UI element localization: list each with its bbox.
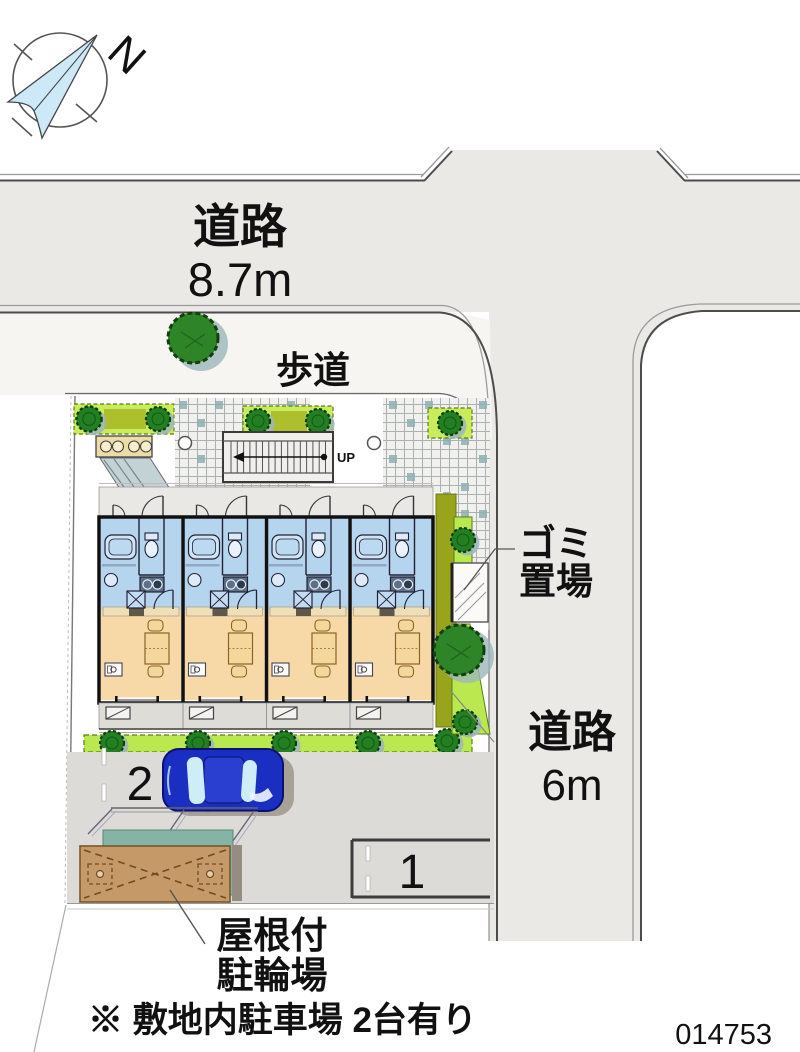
unit-1 bbox=[101, 496, 181, 704]
utility-meters bbox=[96, 436, 152, 457]
entrance-ramp bbox=[100, 458, 170, 489]
road-top-width: 8.7m bbox=[188, 253, 293, 306]
parking-spot-1-label: 1 bbox=[399, 846, 426, 899]
road-right-width: 6m bbox=[541, 761, 602, 810]
garbage-label-line1: ゴミ bbox=[519, 522, 593, 564]
footnote: ※ 敷地内駐車場 2台有り bbox=[88, 1001, 477, 1040]
apartment-building bbox=[99, 484, 433, 733]
plan-id: 014753 bbox=[675, 1019, 772, 1051]
compass: N bbox=[8, 26, 155, 138]
site-plan-canvas: 道路 8.7m 歩道 道路 6m bbox=[0, 0, 800, 1052]
garbage-label-line2: 置場 bbox=[519, 561, 593, 602]
up-label: UP bbox=[337, 450, 355, 465]
site-plan-drawing: 道路 8.7m 歩道 道路 6m bbox=[0, 0, 800, 1052]
parking-yard: 2 1 bbox=[67, 743, 494, 944]
corridor bbox=[99, 484, 433, 518]
unit-2 bbox=[185, 496, 265, 704]
sidewalk-label: 歩道 bbox=[276, 350, 350, 391]
bicycle-shed-label-line1: 屋根付 bbox=[217, 915, 328, 956]
balconies bbox=[99, 703, 433, 733]
road-right-label: 道路 bbox=[528, 708, 617, 757]
unit-3 bbox=[268, 496, 348, 704]
unit-4 bbox=[352, 496, 432, 704]
car bbox=[163, 749, 294, 816]
garbage-area bbox=[452, 563, 488, 622]
parking-spot-2-label: 2 bbox=[127, 758, 154, 811]
car-windshield bbox=[186, 757, 205, 805]
bicycle-shed-label-line2: 駐輪場 bbox=[217, 955, 328, 996]
road-top-label: 道路 bbox=[193, 200, 288, 253]
